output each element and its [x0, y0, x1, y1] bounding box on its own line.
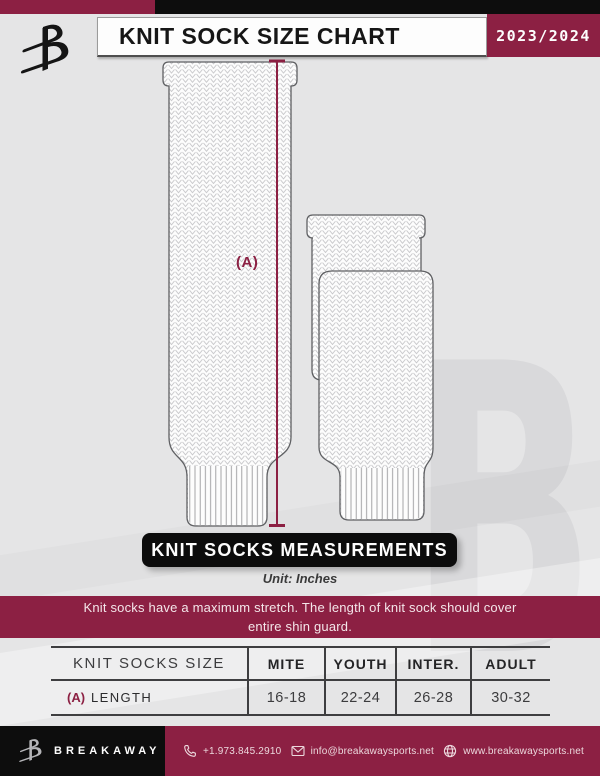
sock-small	[319, 271, 433, 520]
footer-logo-icon	[16, 736, 46, 766]
footer-website-link[interactable]: www.breakawaysports.net	[443, 744, 584, 758]
stretch-notice-banner: Knit socks have a maximum stretch. The l…	[0, 596, 600, 638]
unit-note: Unit: Inches	[0, 571, 600, 586]
measurements-banner: KNIT SOCKS MEASUREMENTS	[142, 533, 457, 567]
email-icon	[291, 744, 305, 758]
footer-phone-text: +1.973.845.2910	[203, 746, 281, 757]
table-header-adult: ADULT	[470, 648, 550, 681]
season-badge: 2023/2024	[487, 14, 600, 57]
row-label-prefix: (A)	[67, 690, 85, 705]
footer-email-text: info@breakawaysports.net	[311, 746, 434, 757]
footer-brand-name: BREAKAWAY	[54, 745, 161, 757]
table-header-youth: YOUTH	[324, 648, 395, 681]
table-value-mite: 16-18	[247, 681, 324, 714]
table-header-inter: INTER.	[395, 648, 470, 681]
top-accent-strip-maroon	[0, 0, 155, 14]
season-label: 2023/2024	[496, 27, 591, 45]
notice-line-1: Knit socks have a maximum stretch. The l…	[83, 598, 516, 617]
table-header-mite: MITE	[247, 648, 324, 681]
measure-label-a: (A)	[236, 254, 258, 271]
notice-line-2: entire shin guard.	[248, 617, 352, 636]
footer-email-link[interactable]: info@breakawaysports.net	[291, 744, 434, 758]
footer: BREAKAWAY +1.973.845.2910 info@breakaway…	[0, 726, 600, 776]
row-label-text: LENGTH	[91, 690, 152, 705]
table-row-label: (A) LENGTH	[51, 681, 247, 714]
footer-phone-link[interactable]: +1.973.845.2910	[183, 744, 281, 758]
table-value-adult: 30-32	[470, 681, 550, 714]
footer-brand-block: BREAKAWAY	[0, 726, 165, 776]
footer-contact-bar: +1.973.845.2910 info@breakawaysports.net…	[165, 726, 600, 776]
size-table: KNIT SOCKS SIZE MITE YOUTH INTER. ADULT …	[51, 646, 550, 716]
knit-sock-diagram	[0, 0, 600, 560]
breakaway-logo-glyph	[14, 18, 78, 82]
table-value-youth: 22-24	[324, 681, 395, 714]
table-value-inter: 26-28	[395, 681, 470, 714]
title-band: KNIT SOCK SIZE CHART	[97, 17, 487, 57]
size-chart-page: B KNIT SOCK SIZE CHART 2023/2024	[0, 0, 600, 776]
breakaway-logo-icon	[14, 18, 78, 87]
page-title: KNIT SOCK SIZE CHART	[119, 23, 400, 50]
measurements-banner-label: KNIT SOCKS MEASUREMENTS	[151, 540, 448, 561]
globe-icon	[443, 744, 457, 758]
top-accent-strip-black	[155, 0, 600, 14]
footer-website-text: www.breakawaysports.net	[463, 746, 584, 757]
table-header-size: KNIT SOCKS SIZE	[51, 648, 247, 681]
phone-icon	[183, 744, 197, 758]
